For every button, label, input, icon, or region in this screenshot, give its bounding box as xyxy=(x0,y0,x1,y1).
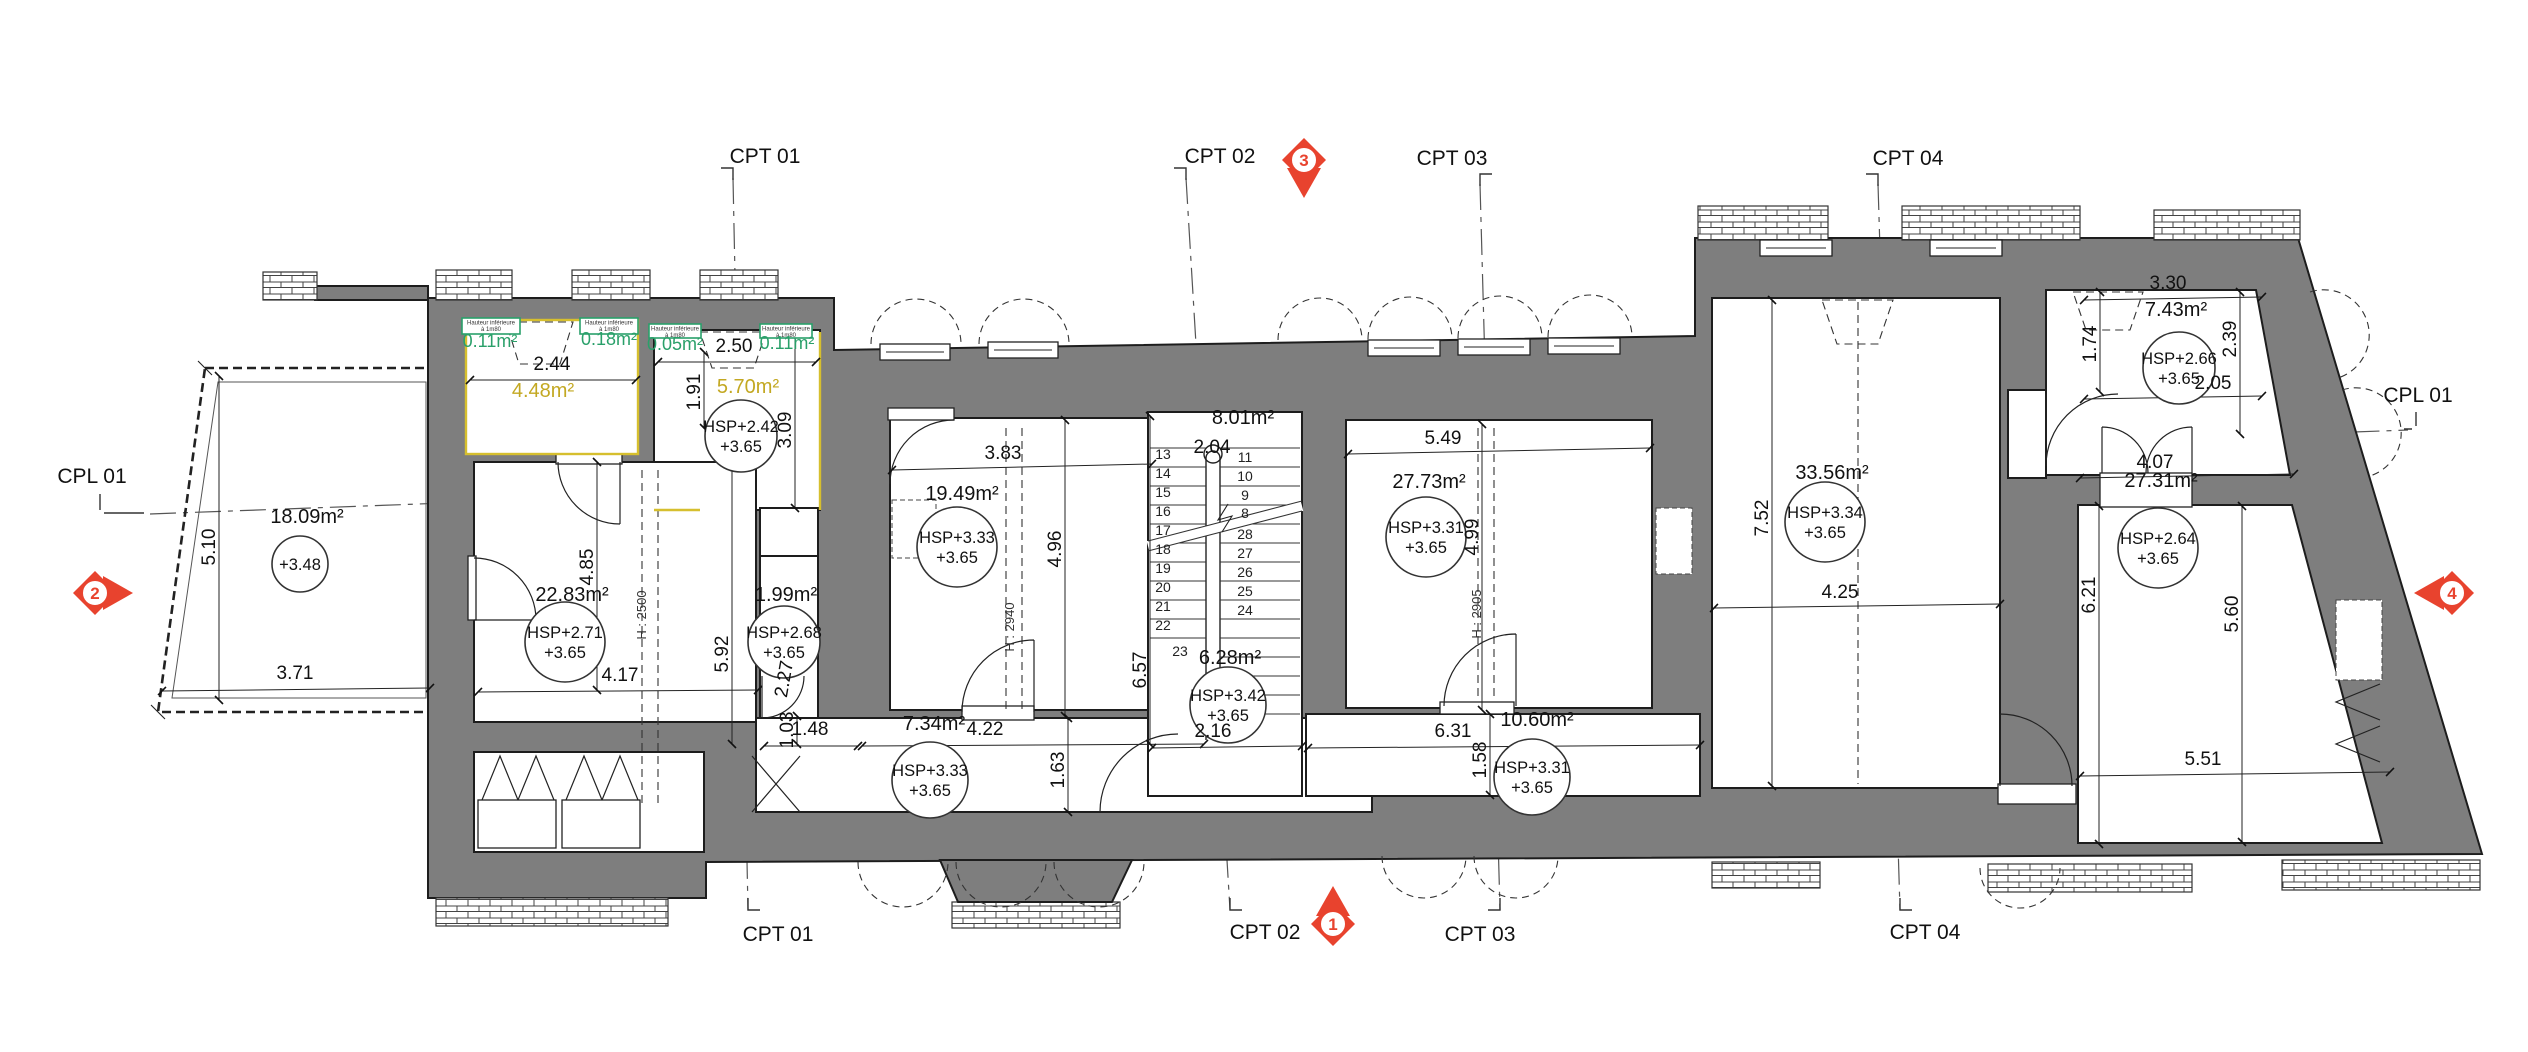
reduced-height-area: 0.11m² xyxy=(463,331,518,351)
grid-axis-label: CPT 01 xyxy=(730,145,801,168)
reduced-height-note: Hauteur inférieureà 1m800.11m² xyxy=(760,324,815,353)
attic-area-label: 4.48m² xyxy=(512,380,575,402)
level-marker: HSP+2.42+3.65 xyxy=(703,400,779,472)
dimension-label: 7.52 xyxy=(1752,500,1773,537)
dimension-label: 5.60 xyxy=(2222,596,2243,633)
room-area-label: 27.31m² xyxy=(2124,470,2198,492)
svg-text:+3.65: +3.65 xyxy=(720,438,762,456)
dimension-label: 5.92 xyxy=(712,636,733,673)
stair-step-number: 14 xyxy=(1155,465,1171,481)
reduced-height-note: Hauteur inférieureà 1m800.18m² xyxy=(580,318,638,349)
dimension-label: 4.96 xyxy=(1045,531,1066,568)
stair-step-number: 13 xyxy=(1155,446,1171,462)
reduced-height-area: 0.05m² xyxy=(647,334,703,354)
reduced-height-area: 0.11m² xyxy=(760,333,815,353)
dimension-label: H : 2500 xyxy=(634,590,649,639)
dimension-label: 5.49 xyxy=(1425,428,1462,449)
svg-text:HSP+2.42: HSP+2.42 xyxy=(703,418,779,436)
dimension-label: 3.83 xyxy=(985,443,1022,464)
grid-axis-label: CPT 03 xyxy=(1417,147,1488,170)
grid-axis-label: CPT 04 xyxy=(1873,147,1944,170)
dimension-label: H : 2905 xyxy=(1469,589,1484,638)
dimension-label: 3.71 xyxy=(277,663,314,684)
svg-text:+3.65: +3.65 xyxy=(936,549,978,567)
section-marker-2: 2 xyxy=(73,571,133,615)
grid-axis-label: CPL 01 xyxy=(2383,384,2452,407)
svg-text:HSP+3.31: HSP+3.31 xyxy=(1388,519,1464,537)
floor-plan-drawing: HSP+2.42+3.65HSP+2.71+3.65HSP+2.68+3.65H… xyxy=(0,0,2528,1052)
svg-text:HSP+2.64: HSP+2.64 xyxy=(2120,530,2196,548)
dimension-label: 5.51 xyxy=(2185,749,2222,770)
level-marker: HSP+3.33+3.65 xyxy=(917,507,997,587)
stair-step-number: 10 xyxy=(1237,468,1253,484)
room-area-label: 1.99m² xyxy=(755,584,818,606)
dimension-label: 5.10 xyxy=(199,529,220,566)
svg-text:Hauteur inférieure: Hauteur inférieure xyxy=(651,327,700,333)
stair-step-number: 15 xyxy=(1155,484,1171,500)
grid-axis-label: CPT 04 xyxy=(1890,921,1961,944)
dimension-label: 4.85 xyxy=(577,549,598,586)
level-marker: HSP+3.33+3.65 xyxy=(892,742,968,818)
dimension-label: 6.31 xyxy=(1435,721,1472,742)
dimension-label: 1.58 xyxy=(1470,742,1491,779)
stair-step-number: 11 xyxy=(1238,449,1253,465)
dimension-label: 2.44 xyxy=(534,354,571,375)
dimension-label: 4.07 xyxy=(2137,452,2174,473)
svg-text:1: 1 xyxy=(1328,915,1337,934)
room-area-label: 10.60m² xyxy=(1500,709,1574,731)
stair-step-number: 28 xyxy=(1237,526,1253,542)
svg-text:HSP+3.33: HSP+3.33 xyxy=(892,762,968,780)
svg-text:HSP+3.33: HSP+3.33 xyxy=(919,529,995,547)
stair-step-number: 17 xyxy=(1155,522,1171,538)
svg-text:+3.65: +3.65 xyxy=(1511,779,1553,797)
svg-text:+3.65: +3.65 xyxy=(544,644,586,662)
svg-text:4: 4 xyxy=(2447,584,2457,603)
stair-step-number: 22 xyxy=(1155,617,1171,633)
level-marker: +3.48 xyxy=(272,536,328,592)
svg-text:Hauteur inférieure: Hauteur inférieure xyxy=(467,321,516,327)
dimension-label: 3.09 xyxy=(775,412,796,449)
svg-text:Hauteur inférieure: Hauteur inférieure xyxy=(585,321,634,327)
dimension-label: 1.74 xyxy=(2080,325,2101,362)
svg-text:Hauteur inférieure: Hauteur inférieure xyxy=(762,327,811,333)
stair-step-number: 25 xyxy=(1237,583,1253,599)
dimension-label: 2.16 xyxy=(1195,721,1232,742)
grid-axis-label: CPT 01 xyxy=(743,923,814,946)
reduced-height-area: 0.18m² xyxy=(581,329,637,349)
level-marker: HSP+3.31+3.65 xyxy=(1494,739,1570,815)
dimension-label: 4.22 xyxy=(967,719,1004,740)
section-marker-4: 4 xyxy=(2414,571,2474,615)
stair-step-number: 23 xyxy=(1172,643,1188,659)
svg-text:+3.65: +3.65 xyxy=(909,782,951,800)
dimension-label: H : 2940 xyxy=(1002,602,1017,651)
svg-text:HSP+2.71: HSP+2.71 xyxy=(527,624,603,642)
dimension-label: 1.91 xyxy=(684,374,705,411)
section-marker-3: 3 xyxy=(1282,138,1326,198)
room-area-label: 6.28m² xyxy=(1199,647,1262,669)
dimension-label: 3.30 xyxy=(2150,273,2187,294)
svg-text:+3.65: +3.65 xyxy=(2137,550,2179,568)
reduced-height-note: Hauteur inférieureà 1m800.11m² xyxy=(462,318,520,351)
grid-axis-label: CPT 02 xyxy=(1185,145,1256,168)
dimension-label: 2.50 xyxy=(716,336,753,357)
dimension-label: 2.05 xyxy=(2195,373,2232,394)
stair-step-number: 26 xyxy=(1237,564,1253,580)
room-area-label: 18.09m² xyxy=(270,506,344,528)
stair-step-number: 20 xyxy=(1155,579,1171,595)
stair-step-number: 8 xyxy=(1241,505,1249,521)
room-area-label: 19.49m² xyxy=(925,483,999,505)
svg-text:HSP+2.68: HSP+2.68 xyxy=(746,624,822,642)
svg-text:HSP+3.34: HSP+3.34 xyxy=(1787,504,1863,522)
dimension-label: 2.04 xyxy=(1194,437,1231,458)
svg-text:+3.65: +3.65 xyxy=(1804,524,1846,542)
dimension-label: 4.25 xyxy=(1822,582,1859,603)
dimension-label: 4.17 xyxy=(602,665,639,686)
stair-step-number: 21 xyxy=(1155,598,1171,614)
grid-axis-label: CPT 02 xyxy=(1230,921,1301,944)
room-area-label: 7.34m² xyxy=(903,713,966,735)
reduced-height-note: Hauteur inférieureà 1m800.05m² xyxy=(647,324,703,354)
stair-step-number: 16 xyxy=(1155,503,1171,519)
dimension-label: 4.99 xyxy=(1462,519,1483,556)
grid-axis-label: CPT 03 xyxy=(1445,923,1516,946)
room-area-label: 8.01m² xyxy=(1212,407,1275,429)
level-marker: HSP+2.71+3.65 xyxy=(525,602,605,682)
svg-text:+3.65: +3.65 xyxy=(1405,539,1447,557)
dimension-label: 6.21 xyxy=(2079,577,2100,614)
stair-step-number: 9 xyxy=(1241,487,1249,503)
stair-step-number: 27 xyxy=(1237,545,1253,561)
stair-step-number: 24 xyxy=(1237,602,1253,618)
dimension-label: 1.03 xyxy=(777,712,798,749)
grid-axis-label: CPL 01 xyxy=(57,465,126,488)
svg-text:+3.65: +3.65 xyxy=(763,644,805,662)
svg-text:+3.48: +3.48 xyxy=(279,556,321,574)
room-area-label: 33.56m² xyxy=(1795,462,1869,484)
dimension-label: 6.57 xyxy=(1130,652,1151,689)
dimension-label: 1.63 xyxy=(1048,752,1069,789)
level-marker: HSP+3.34+3.65 xyxy=(1785,482,1865,562)
svg-text:HSP+2.66: HSP+2.66 xyxy=(2141,350,2217,368)
level-marker: HSP+3.31+3.65 xyxy=(1386,497,1466,577)
svg-text:HSP+3.31: HSP+3.31 xyxy=(1494,759,1570,777)
section-marker-1: 1 xyxy=(1311,886,1355,946)
room-area-label: 22.83m² xyxy=(535,584,609,606)
room-area-label: 7.43m² xyxy=(2145,299,2208,321)
attic-area-label: 5.70m² xyxy=(717,376,780,398)
dimension-label: 2.39 xyxy=(2220,321,2241,358)
svg-text:2: 2 xyxy=(90,584,99,603)
svg-text:HSP+3.42: HSP+3.42 xyxy=(1190,687,1266,705)
room-area-label: 27.73m² xyxy=(1392,471,1466,493)
stair-step-number: 18 xyxy=(1155,541,1171,557)
level-marker: HSP+2.64+3.65 xyxy=(2118,508,2198,588)
svg-text:3: 3 xyxy=(1299,151,1308,170)
stair-step-number: 19 xyxy=(1155,560,1171,576)
